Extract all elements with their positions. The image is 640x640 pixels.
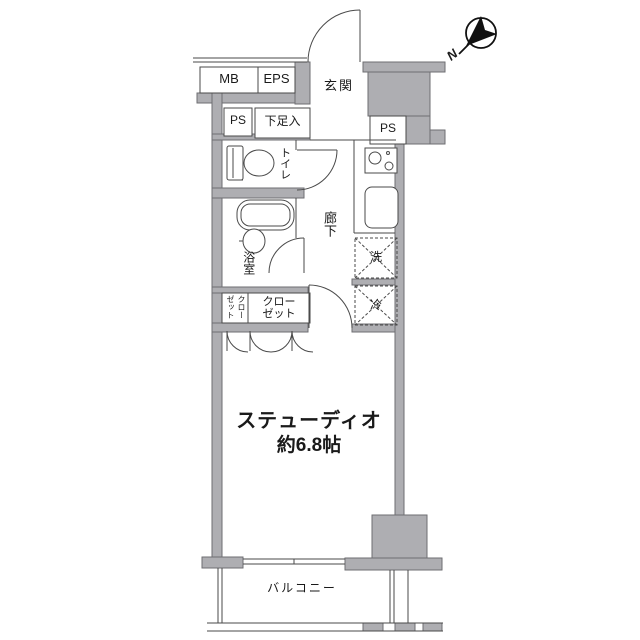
compass-tail <box>459 44 469 54</box>
label-closet-main-line1: クロー <box>248 296 310 308</box>
bathroom-door-swing <box>269 238 304 273</box>
label-ps-left: PS <box>224 114 252 128</box>
label-ps-right: PS <box>370 122 406 136</box>
wall-band-bath-closet <box>212 287 308 293</box>
wall-band-washer-fridge <box>352 279 397 285</box>
studio-door-swing <box>309 285 352 328</box>
balcony-rail-block-2 <box>395 623 415 631</box>
label-eps: EPS <box>258 72 295 87</box>
label-studio: ステューディオ 約6.8帖 <box>222 408 396 459</box>
toilet-bowl <box>244 150 274 176</box>
wall-right-of-ps <box>406 116 430 144</box>
floorplan-drawing <box>0 0 640 640</box>
label-closet-main-line2: ゼット <box>248 308 310 320</box>
label-hallway: 廊下 <box>321 211 336 247</box>
toilet-room <box>227 146 274 180</box>
kitchen <box>365 148 398 228</box>
floorplan-page: MB EPS PS 下足入 玄関 PS トイレ 廊下 浴室 洗 冷 クローゼット… <box>0 0 640 640</box>
label-studio-size: 約6.8帖 <box>222 434 396 459</box>
kitchen-sink <box>365 187 398 228</box>
compass <box>459 16 497 54</box>
balcony-partition <box>390 570 408 623</box>
label-shoe-box: 下足入 <box>255 115 310 129</box>
toilet-door-swing <box>297 150 337 190</box>
wall-band-closet-bottom <box>212 323 308 332</box>
closet-door-arc-1 <box>227 331 248 352</box>
toilet-tank <box>227 146 243 180</box>
bathroom-room <box>237 200 294 253</box>
wall-bottom-right-bar <box>345 558 442 570</box>
closet-door-arc-4 <box>292 331 313 352</box>
label-closet-small: クローゼット <box>224 295 247 322</box>
pillar-bottom-right <box>372 515 427 560</box>
entrance-door-swing <box>308 10 360 62</box>
wall-top-right-bar <box>363 62 445 72</box>
washbasin <box>243 229 265 253</box>
balcony-rail-block-3 <box>423 623 442 631</box>
label-toilet: トイレ <box>278 147 291 191</box>
label-bathroom: 浴室 <box>241 251 255 285</box>
label-mb: MB <box>200 72 258 87</box>
closet-door-arc-2 <box>250 331 271 352</box>
label-balcony: バルコニー <box>222 582 382 596</box>
closet-door-arc-3 <box>271 331 292 352</box>
wall-entrance-left <box>295 62 310 104</box>
closet-door-leaves <box>227 331 292 351</box>
label-fridge: 冷 <box>355 299 397 313</box>
label-closet-main: クロー ゼット <box>248 296 310 320</box>
wall-right-step <box>430 130 445 144</box>
balcony-rail-block-1 <box>363 623 383 631</box>
wall-bottom-left-stub <box>202 557 243 568</box>
wall-top-right-block <box>368 72 430 116</box>
label-entrance: 玄関 <box>310 79 368 94</box>
label-studio-name: ステューディオ <box>222 408 396 434</box>
label-washer: 洗 <box>355 251 397 265</box>
studio-window <box>243 559 345 564</box>
